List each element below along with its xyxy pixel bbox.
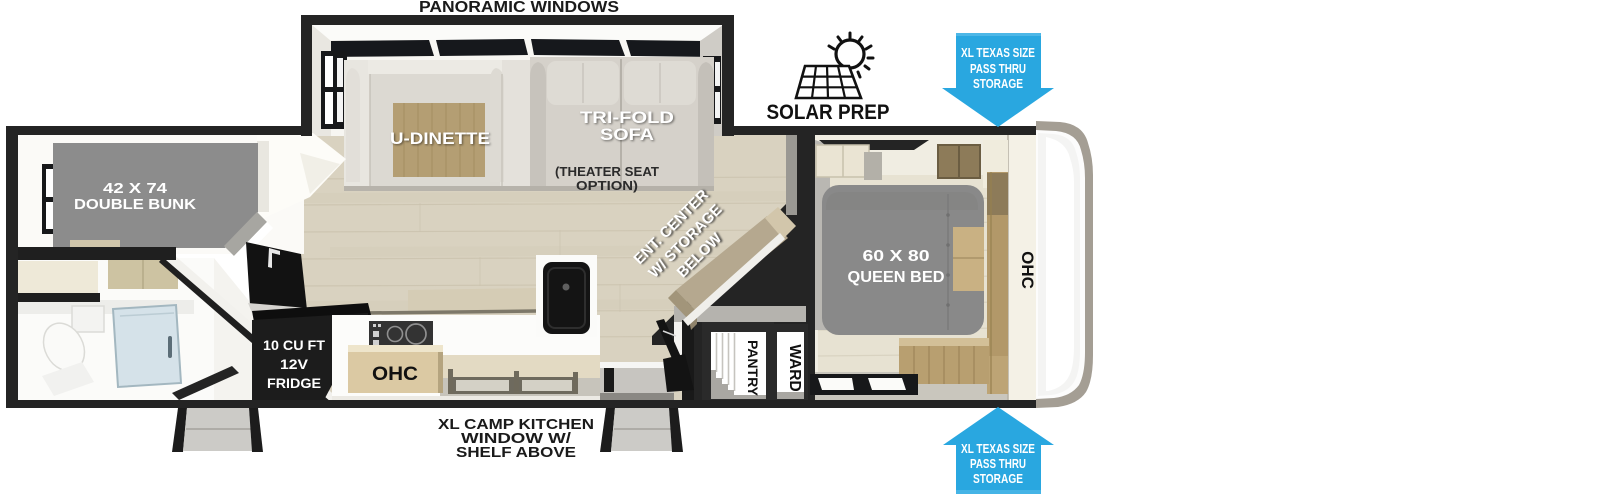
svg-text:12V: 12V xyxy=(280,356,309,372)
svg-text:DOUBLE BUNK: DOUBLE BUNK xyxy=(74,197,197,213)
svg-text:PASS THRU: PASS THRU xyxy=(970,456,1026,471)
svg-text:FRIDGE: FRIDGE xyxy=(267,375,321,391)
svg-text:STORAGE: STORAGE xyxy=(973,471,1023,486)
svg-text:SOLAR PREP: SOLAR PREP xyxy=(767,101,890,124)
svg-text:PANORAMIC WINDOWS: PANORAMIC WINDOWS xyxy=(419,0,619,16)
svg-text:(THEATER SEAT: (THEATER SEAT xyxy=(555,164,659,179)
svg-text:60 X 80: 60 X 80 xyxy=(863,248,930,265)
svg-text:10 CU FT: 10 CU FT xyxy=(263,337,325,353)
svg-text:OHC: OHC xyxy=(372,364,418,385)
svg-text:PANTRY: PANTRY xyxy=(745,340,761,397)
svg-text:XL TEXAS SIZE: XL TEXAS SIZE xyxy=(961,441,1035,456)
svg-text:U-DINETTE: U-DINETTE xyxy=(390,129,490,148)
svg-text:OHC: OHC xyxy=(1018,251,1037,289)
svg-text:SOFA: SOFA xyxy=(600,125,654,144)
svg-text:STORAGE: STORAGE xyxy=(973,76,1023,91)
svg-text:WARD: WARD xyxy=(786,344,803,391)
svg-text:42 X 74: 42 X 74 xyxy=(103,181,167,197)
svg-text:XL TEXAS SIZE: XL TEXAS SIZE xyxy=(961,45,1035,60)
svg-text:QUEEN BED: QUEEN BED xyxy=(848,269,945,286)
svg-text:PASS THRU: PASS THRU xyxy=(970,61,1026,76)
svg-text:OPTION): OPTION) xyxy=(576,178,638,193)
svg-text:SHELF ABOVE: SHELF ABOVE xyxy=(456,444,576,461)
